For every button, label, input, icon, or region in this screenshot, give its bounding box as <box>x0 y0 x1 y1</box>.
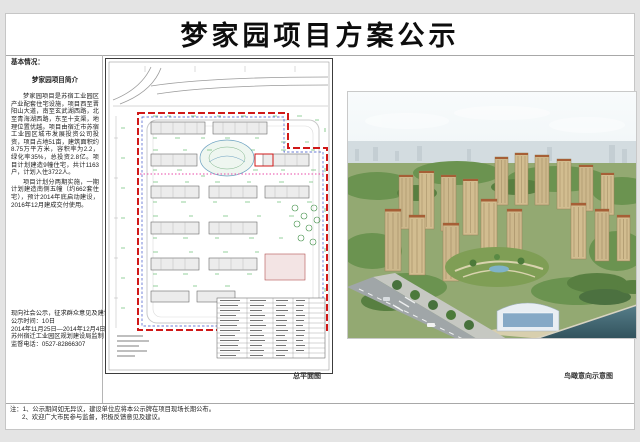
site-plan-caption: 总平面图 <box>105 371 333 381</box>
plan-central-garden <box>200 140 254 176</box>
title-divider <box>6 55 634 56</box>
project-intro-paragraph-1: 梦家园项目是苏宿工业园区产业配套住宅设施，项目西至晋阳山大道，南至玄武湖西路，北… <box>11 93 99 177</box>
basic-info-heading: 基本情况： <box>11 59 99 67</box>
footer-note-2: 2、欢迎广大市民参与监督，积极反馈意见及建议。 <box>10 414 215 422</box>
page-title: 梦家园项目方案公示 <box>6 17 634 55</box>
notice-phone: 监督电话：0527-82866307 <box>11 341 99 349</box>
plan-indicator-table <box>217 298 325 358</box>
footer-note-1: 注：1、公示期间如无异议，建设单位应将本公示牌在项目现场长期公布。 <box>10 406 215 414</box>
notice-line: 现向社会公示，征求群众意见及建议， <box>11 310 99 318</box>
poster-board: 梦家园项目方案公示 基本情况： 梦家园项目简介 梦家园项目是苏宿工业园区产业配套… <box>5 13 635 430</box>
rendering-caption: 鸟瞰意向示意图 <box>347 371 637 381</box>
project-intro-title: 梦家园项目简介 <box>11 77 99 85</box>
render-courtyard <box>445 247 549 287</box>
render-clubhouse <box>497 303 559 331</box>
aerial-rendering-image <box>347 91 637 339</box>
footer-notes: 注：1、公示期间如无异议，建设单位应将本公示牌在项目现场长期公布。 2、欢迎广大… <box>10 406 215 421</box>
notice-line: 公示时间：10日 <box>11 318 99 326</box>
announcement-page: 梦家园项目方案公示 基本情况： 梦家园项目简介 梦家园项目是苏宿工业园区产业配套… <box>0 0 640 442</box>
left-panel: 基本情况： 梦家园项目简介 梦家园项目是苏宿工业园区产业配套住宅设施，项目西至晋… <box>11 59 99 211</box>
project-intro-paragraph-2: 项目计划分两期实施，一期计划建造南侧五幢（约662套住宅），预计2014年底启动… <box>11 179 99 209</box>
left-column-divider <box>102 55 103 403</box>
public-notice-block: 现向社会公示，征求群众意见及建议， 公示时间：10日 2014年11月25日—2… <box>11 310 99 349</box>
site-plan-image <box>105 58 333 374</box>
footer-divider <box>6 403 634 404</box>
